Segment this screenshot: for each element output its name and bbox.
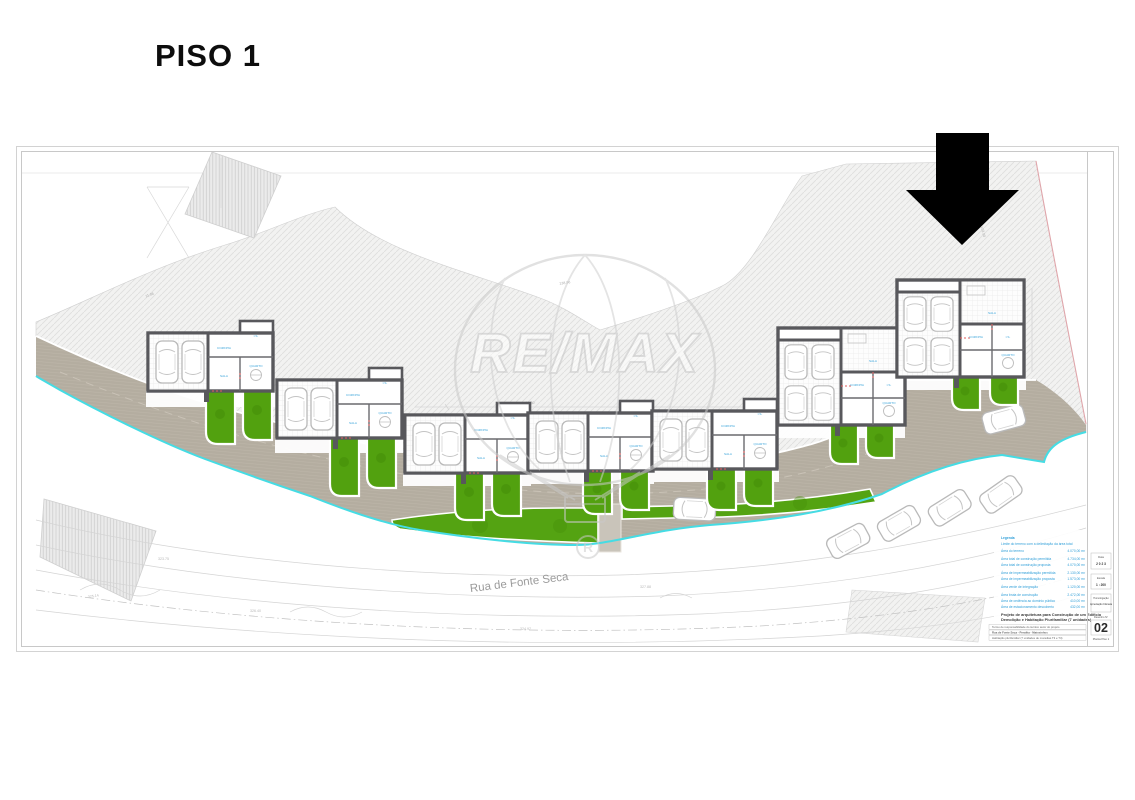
date-value: 2 0 2 3 — [1096, 562, 1106, 566]
legend-row: Área total de construção proposta4.070,0… — [1001, 563, 1086, 567]
svg-text:324.97: 324.97 — [520, 627, 531, 631]
svg-text:4.734,00 m²: 4.734,00 m² — [1067, 557, 1085, 561]
sheet-number: 02 — [1094, 621, 1108, 635]
svg-text:Área de impermeabilização prop: Área de impermeabilização proposta — [1001, 577, 1055, 581]
house-unit-5 — [652, 399, 777, 480]
scale-value: 1 : 200 — [1096, 583, 1106, 587]
svg-text:1.573,00 m²: 1.573,00 m² — [1067, 577, 1085, 581]
svg-text:4.070,00 m²: 4.070,00 m² — [1067, 549, 1085, 553]
svg-text:Habitação plurifamiliar (7 uni: Habitação plurifamiliar (7 unidades de m… — [992, 636, 1063, 640]
watermark-brand-text: RE/MAX — [470, 321, 701, 384]
legend-row: Área de cedência ao domínio público410,0… — [1001, 599, 1086, 603]
sheet-caption: Planta Piso 1 — [1093, 637, 1110, 641]
svg-text:Rua de Fonte Seca - Perafita -: Rua de Fonte Seca - Perafita - Matosinho… — [992, 631, 1048, 635]
svg-text:Área de cedência ao domínio pú: Área de cedência ao domínio público — [1001, 599, 1055, 603]
svg-text:323.75: 323.75 — [158, 557, 169, 561]
house-unit-1 — [148, 321, 273, 402]
svg-text:326.40: 326.40 — [250, 609, 261, 613]
svg-text:Área de impermeabilização perm: Área de impermeabilização permitida — [1001, 571, 1056, 575]
project-title: Projeto de arquitetura para Construção d… — [1001, 612, 1102, 622]
legend-row: Área de estacionamento descoberto432,00 … — [1001, 605, 1086, 609]
house-unit-6 — [778, 328, 905, 436]
titleblock-meta: Data 2 0 2 3 Escala 1 : 200 Homologação … — [1090, 553, 1113, 641]
stage-value: Apreciação Câmara — [1090, 603, 1113, 606]
svg-text:432,00 m²: 432,00 m² — [1070, 605, 1086, 609]
legend-row: Área de impermeabilização proposta1.573,… — [1001, 577, 1086, 581]
svg-text:Área total de construção propo: Área total de construção proposta — [1001, 563, 1051, 567]
svg-text:Área total de construção permi: Área total de construção permitida — [1001, 557, 1051, 561]
project-info-rows: Termo de responsabilidade do técnico aut… — [989, 625, 1086, 641]
svg-text:Área bruta de construção: Área bruta de construção — [1001, 593, 1038, 597]
svg-text:Área do terreno: Área do terreno — [1001, 549, 1024, 553]
svg-text:Demolição e Habitação Plurifam: Demolição e Habitação Plurifamiliar (7 u… — [1001, 617, 1092, 622]
watermark-registered-mark: R — [583, 539, 593, 555]
legend-heading: Legenda — [1001, 536, 1015, 540]
svg-text:2.130,00 m²: 2.130,00 m² — [1067, 571, 1085, 575]
site-plan: I.S. COZINHA SALA QUARTO SALA — [0, 0, 1135, 800]
svg-text:Termo de responsabilidade do t: Termo de responsabilidade do técnico aut… — [992, 625, 1060, 629]
svg-text:Área verde de integração: Área verde de integração — [1001, 585, 1038, 589]
house-unit-4 — [528, 401, 653, 482]
legend-row: Área total de construção permitida4.734,… — [1001, 557, 1086, 561]
sheet-label: Desenho Nº — [1094, 615, 1108, 619]
page-title: PISO 1 — [155, 38, 261, 74]
house-unit-7 — [897, 280, 1024, 388]
legend-row: Área de impermeabilização permitida2.130… — [1001, 571, 1086, 575]
svg-text:410,00 m²: 410,00 m² — [1070, 599, 1086, 603]
scale-label: Escala — [1097, 576, 1106, 580]
svg-text:327.88: 327.88 — [640, 585, 651, 589]
house-unit-3 — [405, 403, 530, 484]
date-label: Data — [1098, 555, 1104, 559]
stage-label: Homologação — [1093, 597, 1109, 600]
svg-text:Área de estacionamento descobe: Área de estacionamento descoberto — [1001, 605, 1054, 609]
svg-text:2.472,00 m²: 2.472,00 m² — [1067, 593, 1085, 597]
svg-text:4.070,00 m²: 4.070,00 m² — [1067, 563, 1085, 567]
legend-intro: Limite do terreno com a delimitação da á… — [1001, 542, 1073, 546]
house-unit-2 — [277, 368, 402, 449]
drawing-sheet: PISO 1 — [0, 0, 1135, 800]
svg-text:1.120,00 m²: 1.120,00 m² — [1067, 585, 1085, 589]
